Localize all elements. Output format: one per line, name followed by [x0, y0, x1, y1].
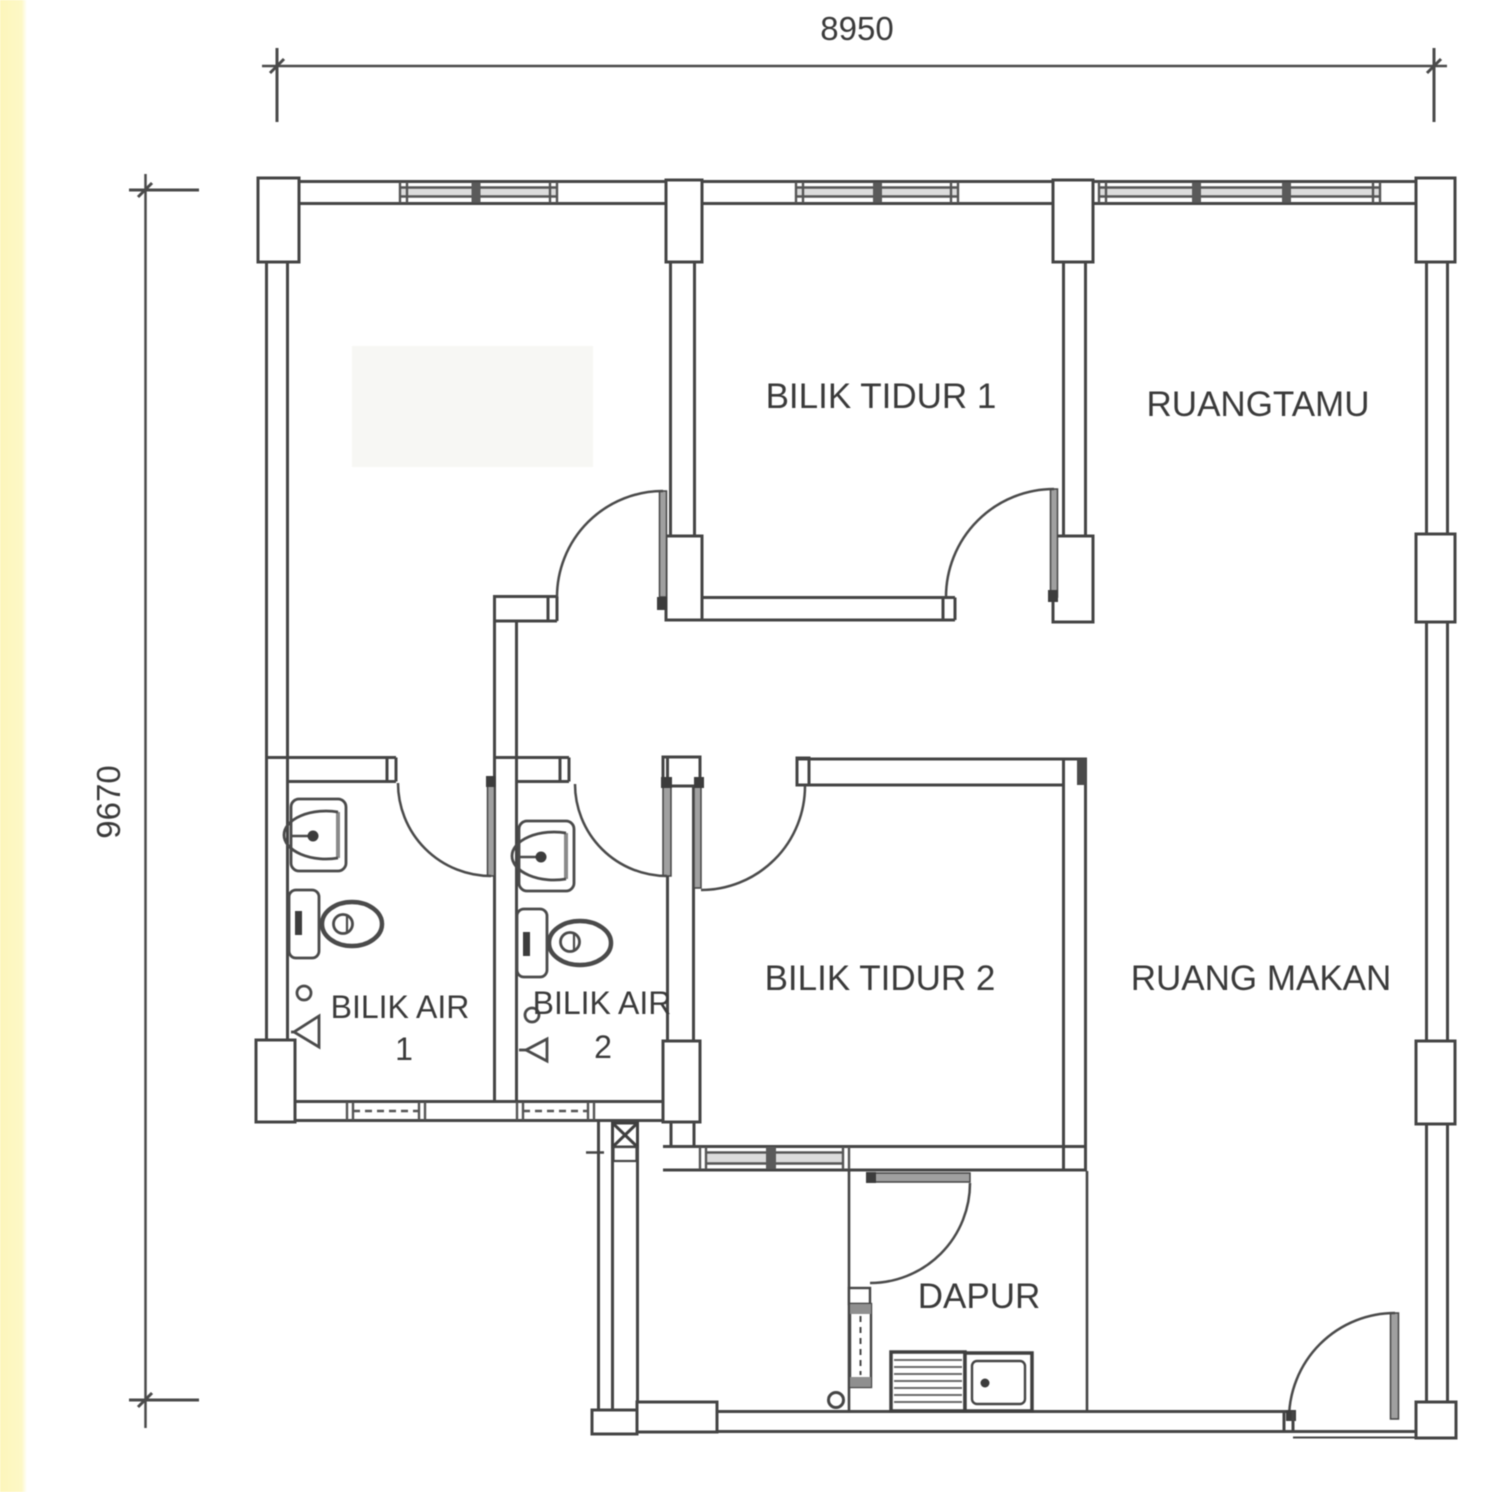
svg-text:BILIK TIDUR 2: BILIK TIDUR 2: [765, 959, 996, 998]
svg-text:RUANGTAMU: RUANGTAMU: [1147, 385, 1370, 424]
svg-text:BILIK AIR: BILIK AIR: [331, 989, 470, 1025]
svg-text:BILIK TIDUR 1: BILIK TIDUR 1: [766, 377, 997, 416]
svg-text:BILIK AIR: BILIK AIR: [533, 985, 672, 1021]
svg-text:2: 2: [594, 1029, 612, 1065]
svg-text:RUANG MAKAN: RUANG MAKAN: [1131, 959, 1392, 998]
svg-text:9670: 9670: [90, 765, 127, 838]
svg-text:8950: 8950: [820, 10, 893, 47]
svg-text:DAPUR: DAPUR: [918, 1277, 1041, 1316]
svg-text:1: 1: [395, 1031, 413, 1067]
